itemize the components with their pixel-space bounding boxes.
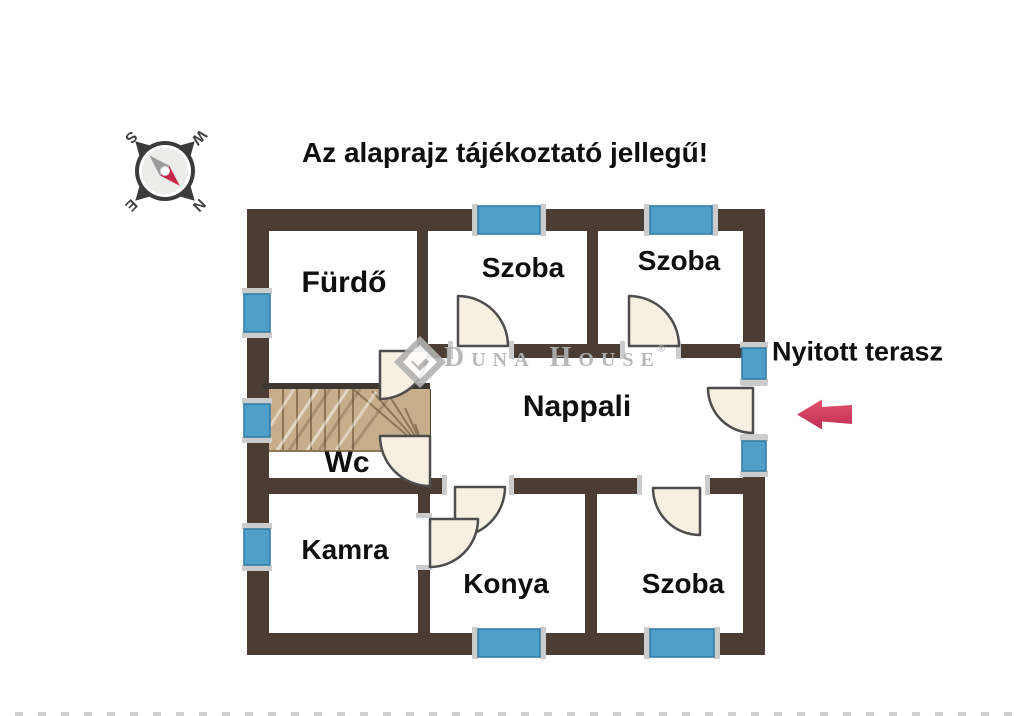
wall-furdo-szoba xyxy=(417,231,428,346)
room-label-szoba-top-mid: Szoba xyxy=(482,254,564,282)
room-label-konya: Konya xyxy=(463,570,549,598)
room-label-szoba-bottom: Szoba xyxy=(642,570,724,598)
doors xyxy=(380,296,753,567)
room-label-kamra: Kamra xyxy=(301,536,388,564)
window-nappali-lower xyxy=(742,441,766,471)
wall-h2-b xyxy=(509,478,642,494)
door-terrace xyxy=(708,388,753,433)
disclaimer-title: Az alaprajz tájékoztató jellegű! xyxy=(302,137,708,169)
room-label-wc: Wc xyxy=(325,448,370,478)
window-szoba-top-right xyxy=(650,206,712,234)
watermark-registered-mark: ® xyxy=(657,343,665,355)
wall-konya-szoba xyxy=(585,494,597,633)
wall-h2-c xyxy=(705,478,765,494)
room-label-nappali: Nappali xyxy=(523,392,631,422)
floorplan-image: N E S W xyxy=(0,0,1024,716)
window-szoba-bottom xyxy=(650,629,714,657)
watermark-name: Duna House xyxy=(444,342,661,373)
window-nappali-upper xyxy=(742,348,766,379)
window-konya xyxy=(478,629,540,657)
door-szoba-top-mid xyxy=(458,296,508,346)
room-label-furdo: Fürdő xyxy=(302,268,387,298)
wall-kamra-konya-lower xyxy=(418,570,430,633)
door-szoba-bottom xyxy=(653,488,700,535)
gallery-strip-edge xyxy=(0,712,1024,716)
compass-letter-s: S xyxy=(122,128,141,147)
door-kamra-konya xyxy=(430,519,478,567)
watermark-text: Duna House® xyxy=(444,342,669,374)
window-stairwell xyxy=(244,404,270,437)
window-furdo xyxy=(244,294,270,332)
window-kamra xyxy=(244,529,270,565)
terrace-label: Nyitott terasz xyxy=(772,337,943,368)
room-label-szoba-top-right: Szoba xyxy=(638,247,720,275)
terrace-arrow-left-icon xyxy=(797,400,852,430)
door-szoba-top-right xyxy=(629,296,679,346)
wall-szoba-szoba xyxy=(587,231,598,346)
window-szoba-top-mid xyxy=(478,206,540,234)
compass-icon: N E S W xyxy=(88,92,244,248)
